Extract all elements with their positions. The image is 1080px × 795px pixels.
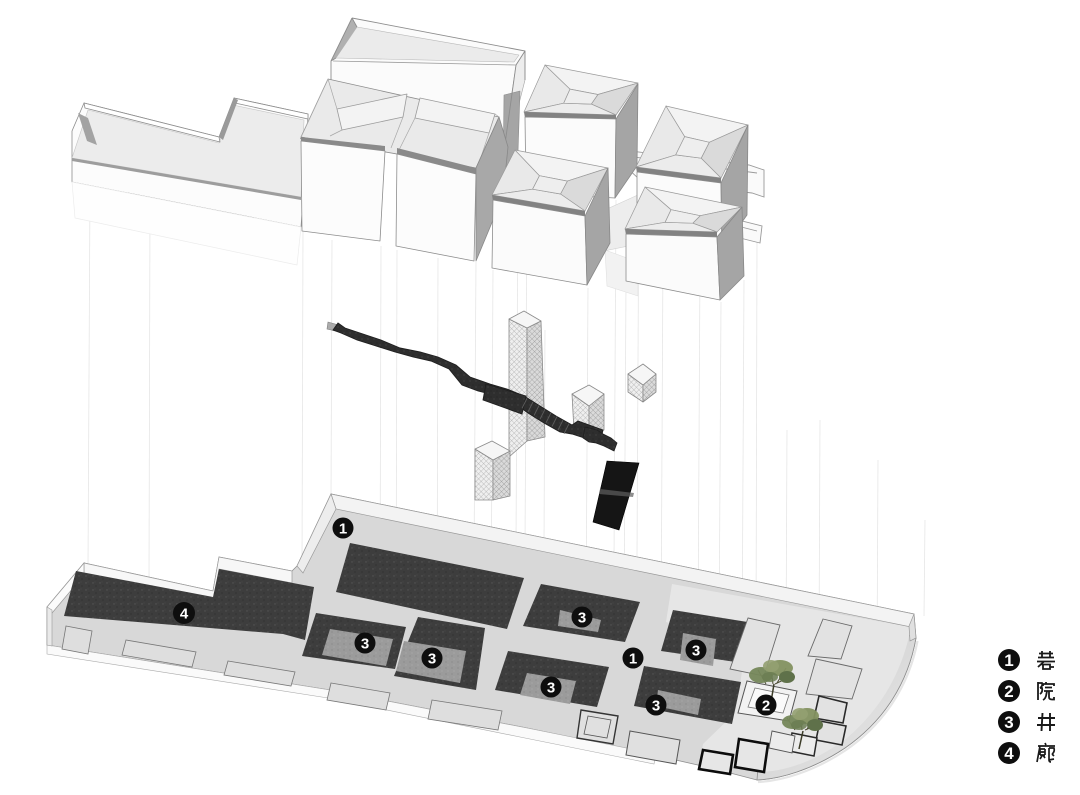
svg-text:3: 3 <box>692 642 700 659</box>
svg-text:1: 1 <box>339 520 347 537</box>
svg-text:4: 4 <box>1004 744 1014 763</box>
svg-text:3: 3 <box>547 679 555 696</box>
svg-text:2: 2 <box>762 697 770 714</box>
svg-text:3: 3 <box>428 650 436 667</box>
svg-text:4: 4 <box>180 605 189 622</box>
svg-text:3: 3 <box>1004 713 1013 732</box>
svg-text:1: 1 <box>629 650 637 667</box>
svg-text:1: 1 <box>1004 651 1013 670</box>
svg-text:3: 3 <box>578 609 586 626</box>
svg-text:3: 3 <box>652 697 660 714</box>
svg-text:2: 2 <box>1004 682 1013 701</box>
svg-text:3: 3 <box>361 635 369 652</box>
